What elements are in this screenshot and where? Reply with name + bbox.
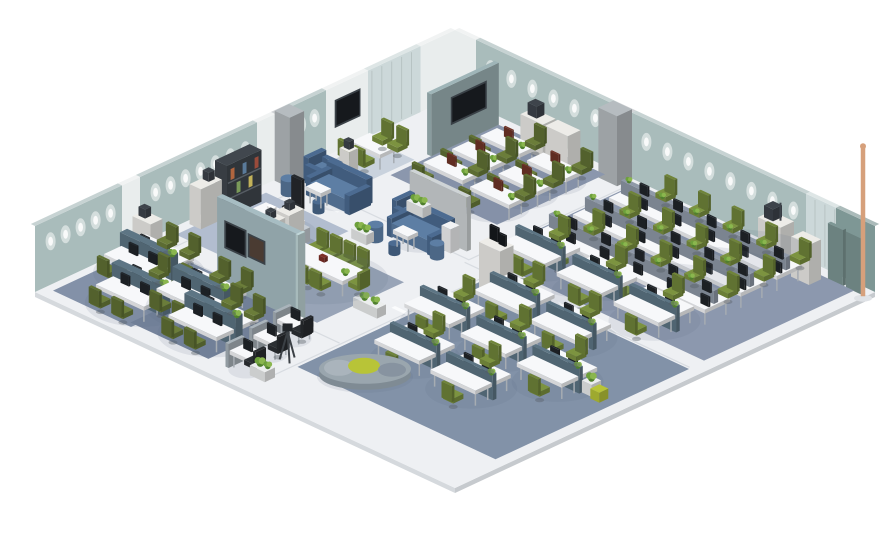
plant [657, 258, 661, 262]
plant [590, 226, 594, 230]
plant [590, 373, 597, 380]
plant [344, 268, 350, 274]
plant [626, 210, 630, 214]
books [255, 156, 259, 169]
office-floorplan-render [0, 0, 895, 539]
plant [374, 297, 380, 303]
plant [236, 310, 242, 316]
plant [726, 257, 730, 261]
plant [690, 273, 694, 277]
books [243, 162, 247, 175]
plant [695, 208, 699, 212]
books [249, 175, 253, 188]
plant [662, 193, 666, 197]
plant [267, 361, 273, 367]
plant [365, 224, 371, 230]
plant [693, 241, 697, 245]
books [231, 167, 235, 180]
curved-bench [317, 354, 413, 393]
plant [659, 225, 663, 229]
plant [224, 283, 230, 289]
lamp-head [860, 143, 866, 149]
plant [762, 240, 766, 244]
office-floorplan-illustration [0, 0, 895, 539]
bench-cushion [348, 358, 380, 374]
plant [171, 249, 177, 255]
plant [729, 224, 733, 228]
camera [283, 323, 293, 331]
plant [422, 197, 428, 203]
plant [592, 194, 596, 198]
plant [628, 177, 632, 181]
books [237, 181, 241, 194]
